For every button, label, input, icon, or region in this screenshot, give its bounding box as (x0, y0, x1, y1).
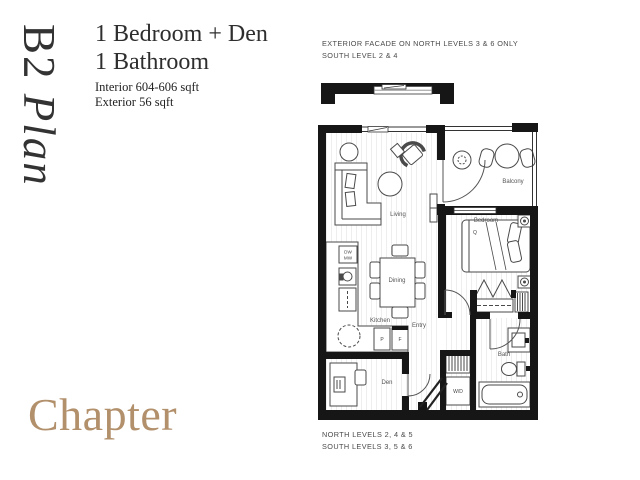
balcony-label: Balcony (502, 179, 523, 185)
washer-dryer-label: W/D (453, 389, 463, 395)
floorplan: Living Dining Kitchen Den Entry Balcony … (316, 112, 540, 433)
bed-size-label: Q (473, 230, 477, 236)
dining-chair-icon (392, 307, 408, 318)
dishwasher-label: DW (344, 250, 352, 255)
fridge-label: F (398, 337, 401, 343)
facade-diagram (320, 82, 455, 113)
levels-note-line1: NORTH LEVELS 2, 4 & 5 (322, 429, 413, 441)
toilet-icon (502, 363, 517, 376)
plan-word-text: Plan (14, 94, 64, 187)
dining-chair-icon (415, 283, 425, 299)
sofa-pillow-icon (345, 192, 355, 207)
desk-chair-icon (355, 370, 366, 385)
facade-right-wall (432, 83, 454, 104)
plan-title-line2: 1 Bathroom (95, 48, 268, 76)
brand-logo: Chapter (28, 388, 177, 441)
facade-note-line1: EXTERIOR FACADE ON NORTH LEVELS 3 & 6 ON… (322, 38, 518, 50)
den-label: Den (381, 380, 392, 386)
facade-left-wall (321, 83, 374, 104)
balcony-furniture (453, 144, 536, 169)
floorplan-svg: Living Dining Kitchen Den Entry Balcony … (316, 112, 540, 428)
living-label: Living (390, 212, 406, 218)
patio-chair-icon (478, 148, 495, 169)
dining-chair-icon (370, 283, 380, 299)
plan-areas: Interior 604-606 sqft Exterior 56 sqft (95, 80, 199, 110)
patio-chair-icon (519, 148, 536, 169)
entry-label: Entry (412, 323, 426, 329)
microwave-label: MW (344, 256, 353, 261)
tub-drain-icon (518, 392, 523, 397)
dining-chair-icon (370, 262, 380, 278)
floorplan-page: B2 Plan 1 Bedroom + Den 1 Bathroom Inter… (0, 0, 640, 480)
dresser-icon (515, 292, 528, 312)
plan-code-text: B2 (14, 24, 64, 81)
levels-note-line2: SOUTH LEVELS 3, 5 & 6 (322, 441, 413, 453)
bath-label: Bath (498, 352, 510, 358)
floor-lamp-icon (340, 143, 358, 161)
facade-note-line2: SOUTH LEVEL 2 & 4 (322, 50, 518, 62)
dining-chair-icon (415, 262, 425, 278)
facade-svg (320, 82, 455, 108)
sofa-pillow-icon (345, 173, 356, 188)
levels-note: NORTH LEVELS 2, 4 & 5 SOUTH LEVELS 3, 5 … (322, 429, 413, 453)
dining-chair-icon (392, 245, 408, 256)
bedroom-label: Bedroom (474, 218, 498, 224)
plan-title-line1: 1 Bedroom + Den (95, 20, 268, 48)
kitchen-label: Kitchen (370, 318, 390, 324)
plan-code: B2 Plan (16, 24, 61, 187)
laundry-closet (446, 352, 470, 405)
exterior-area: Exterior 56 sqft (95, 95, 199, 110)
plan-title: 1 Bedroom + Den 1 Bathroom (95, 20, 268, 76)
corner-counter-icon (338, 325, 360, 347)
facade-note: EXTERIOR FACADE ON NORTH LEVELS 3 & 6 ON… (322, 38, 518, 62)
bistro-table-icon (495, 144, 519, 168)
coffee-table-icon (378, 172, 402, 196)
interior-area: Interior 604-606 sqft (95, 80, 199, 95)
dining-label: Dining (388, 278, 405, 284)
bath-sink-icon (512, 333, 525, 347)
